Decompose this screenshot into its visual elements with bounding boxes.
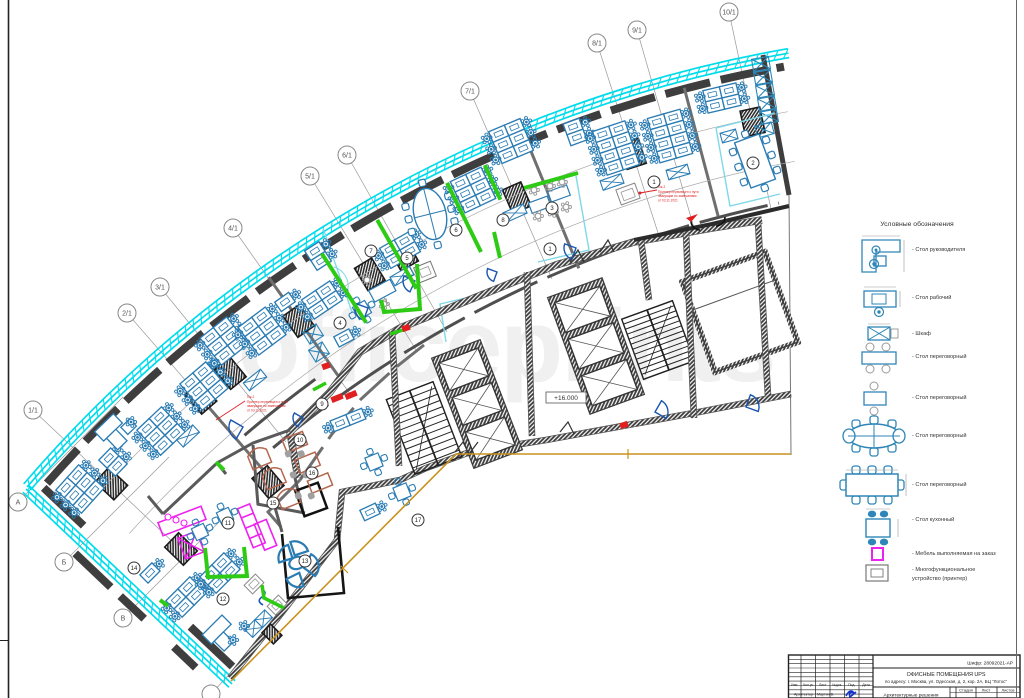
svg-text:устройство (принтер): устройство (принтер) <box>912 575 967 582</box>
svg-text:Пж-2: Пж-2 <box>247 395 254 399</box>
svg-text:№док.: №док. <box>832 683 842 687</box>
svg-text:- Стол рабочий: - Стол рабочий <box>912 294 951 301</box>
svg-text:14: 14 <box>131 566 138 572</box>
svg-text:3/1: 3/1 <box>155 285 165 292</box>
svg-text:+16.000: +16.000 <box>554 395 578 402</box>
svg-text:А: А <box>16 500 21 507</box>
svg-text:- Мебель выполняемая на заказ: - Мебель выполняемая на заказ <box>912 551 996 557</box>
svg-text:8/1: 8/1 <box>592 41 602 48</box>
svg-text:ОФИСНЫЕ ПОМЕЩЕНИЯ UPS: ОФИСНЫЕ ПОМЕЩЕНИЯ UPS <box>907 672 986 678</box>
svg-text:10/1: 10/1 <box>722 10 736 17</box>
svg-text:- Стол переговорный: - Стол переговорный <box>912 481 967 488</box>
svg-text:Под.: Под. <box>848 683 855 687</box>
svg-text:16: 16 <box>309 471 316 477</box>
svg-text:от 03.11.2021: от 03.11.2021 <box>247 408 267 412</box>
svg-text:Шифр: 28092021-АР: Шифр: 28092021-АР <box>967 661 1013 667</box>
svg-text:Лист: Лист <box>819 683 827 687</box>
svg-text:Лист: Лист <box>982 688 991 693</box>
svg-text:Условные обозначения: Условные обозначения <box>880 220 954 228</box>
svg-text:11: 11 <box>225 521 232 527</box>
svg-text:Мартин В.: Мартин В. <box>817 693 834 697</box>
svg-text:Архитектурные решения: Архитектурные решения <box>884 693 939 698</box>
svg-text:В: В <box>121 616 126 623</box>
svg-text:- Многофункциональное: - Многофункциональное <box>912 567 975 573</box>
svg-text:- Стол переговорный: - Стол переговорный <box>912 432 967 439</box>
svg-text:- Стол руководителя: - Стол руководителя <box>912 247 965 253</box>
svg-text:Архитектор: Архитектор <box>794 693 813 697</box>
svg-text:по адресу: г. Москва, ул. Одес: по адресу: г. Москва, ул. Одесская, д. 2… <box>885 679 1008 684</box>
svg-text:Изм.: Изм. <box>791 683 798 687</box>
svg-text:Кол.уч: Кол.уч <box>803 683 813 687</box>
svg-text:от 03.11.2021: от 03.11.2021 <box>658 198 678 202</box>
svg-text:5/1: 5/1 <box>305 174 315 181</box>
svg-text:9/1: 9/1 <box>632 28 642 35</box>
svg-text:1/1: 1/1 <box>28 408 38 415</box>
svg-text:2/1: 2/1 <box>122 311 132 318</box>
svg-text:15: 15 <box>270 501 277 507</box>
svg-text:17: 17 <box>415 518 422 524</box>
svg-text:- Стол кухонный: - Стол кухонный <box>912 516 954 523</box>
svg-text:7/1: 7/1 <box>465 89 475 96</box>
svg-text:Б: Б <box>62 560 67 567</box>
svg-text:Стадия: Стадия <box>959 688 973 693</box>
svg-text:Листов: Листов <box>1002 688 1015 693</box>
svg-text:4/1: 4/1 <box>228 226 238 233</box>
svg-text:- Шкаф: - Шкаф <box>912 331 931 337</box>
svg-text:- Стол переговорный: - Стол переговорный <box>912 353 967 360</box>
svg-text:Дата: Дата <box>862 683 870 687</box>
svg-text:13: 13 <box>302 559 309 565</box>
svg-text:- Стол переговорный: - Стол переговорный <box>912 394 967 401</box>
svg-text:12: 12 <box>220 597 227 603</box>
svg-text:6/1: 6/1 <box>342 153 352 160</box>
svg-text:10: 10 <box>297 438 304 444</box>
